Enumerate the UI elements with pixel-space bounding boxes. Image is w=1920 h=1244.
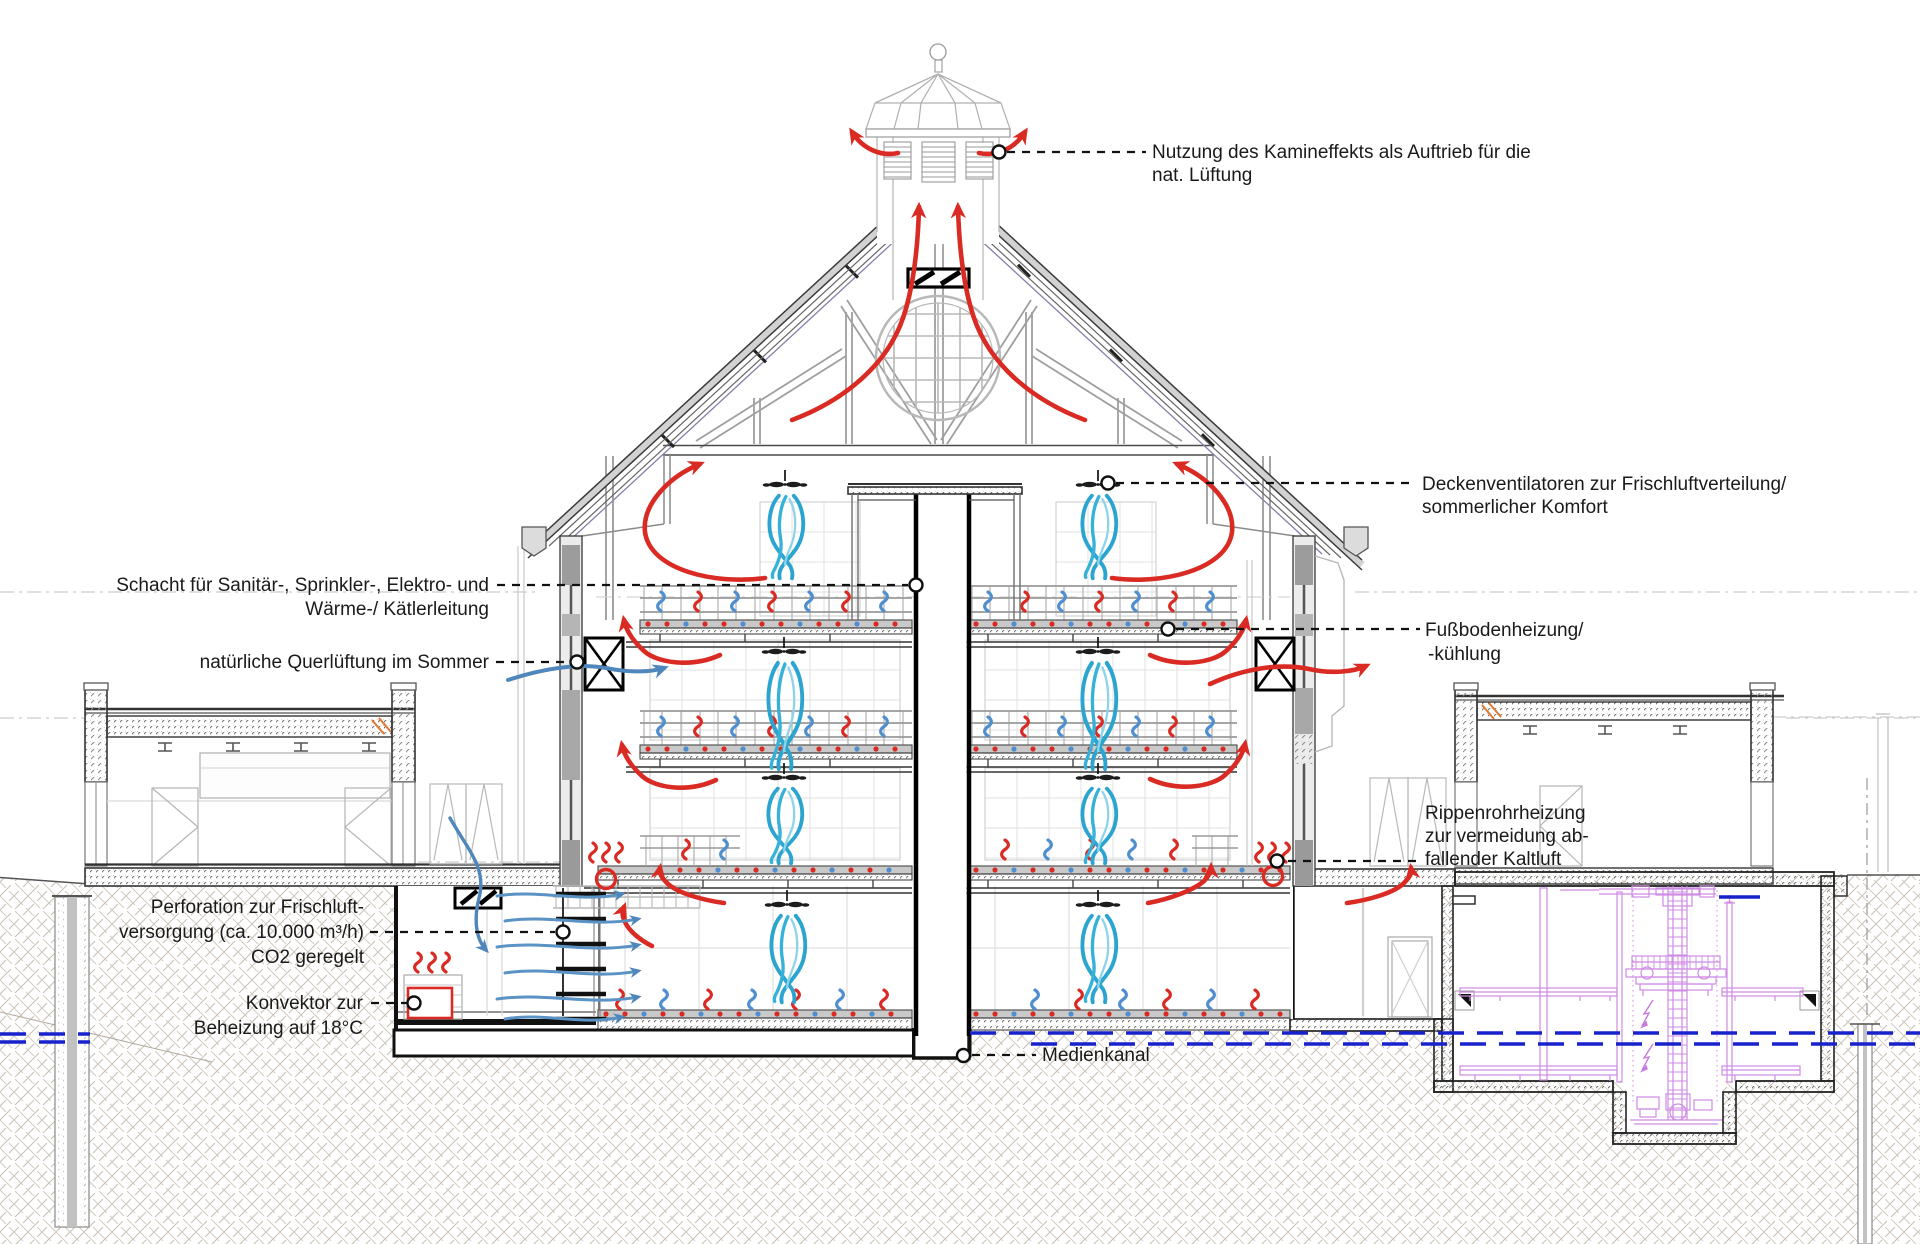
svg-text:Fußbodenheizung/: Fußbodenheizung/ — [1425, 620, 1584, 641]
svg-text:sommerlicher Komfort: sommerlicher Komfort — [1422, 497, 1609, 518]
svg-text:Beheizung auf 18°C: Beheizung auf 18°C — [194, 1018, 363, 1039]
svg-text:Nutzung des Kamineffekts als A: Nutzung des Kamineffekts als Auftrieb fü… — [1152, 142, 1531, 163]
svg-text:versorgung (ca. 10.000 m³/h): versorgung (ca. 10.000 m³/h) — [119, 922, 364, 943]
svg-text:fallender Kaltluft: fallender Kaltluft — [1425, 849, 1562, 870]
svg-text:Konvektor zur: Konvektor zur — [246, 993, 364, 1014]
svg-text:CO2 geregelt: CO2 geregelt — [251, 947, 365, 968]
svg-text:-kühlung: -kühlung — [1428, 644, 1501, 665]
svg-text:Perforation zur Frischluft-: Perforation zur Frischluft- — [151, 897, 364, 918]
svg-text:Rippenrohrheizung: Rippenrohrheizung — [1425, 803, 1586, 824]
svg-text:Wärme-/ Kätlerleitung: Wärme-/ Kätlerleitung — [305, 599, 489, 620]
svg-text:Schacht für Sanitär-, Sprinkle: Schacht für Sanitär-, Sprinkler-, Elektr… — [116, 575, 489, 596]
svg-text:Medienkanal: Medienkanal — [1042, 1045, 1150, 1066]
svg-text:natürliche Querlüftung im Somm: natürliche Querlüftung im Sommer — [200, 652, 490, 673]
svg-text:nat. Lüftung: nat. Lüftung — [1152, 165, 1252, 186]
svg-text:Deckenventilatoren zur Frischl: Deckenventilatoren zur Frischluftverteil… — [1422, 474, 1787, 495]
svg-text:zur vermeidung ab-: zur vermeidung ab- — [1425, 826, 1589, 847]
